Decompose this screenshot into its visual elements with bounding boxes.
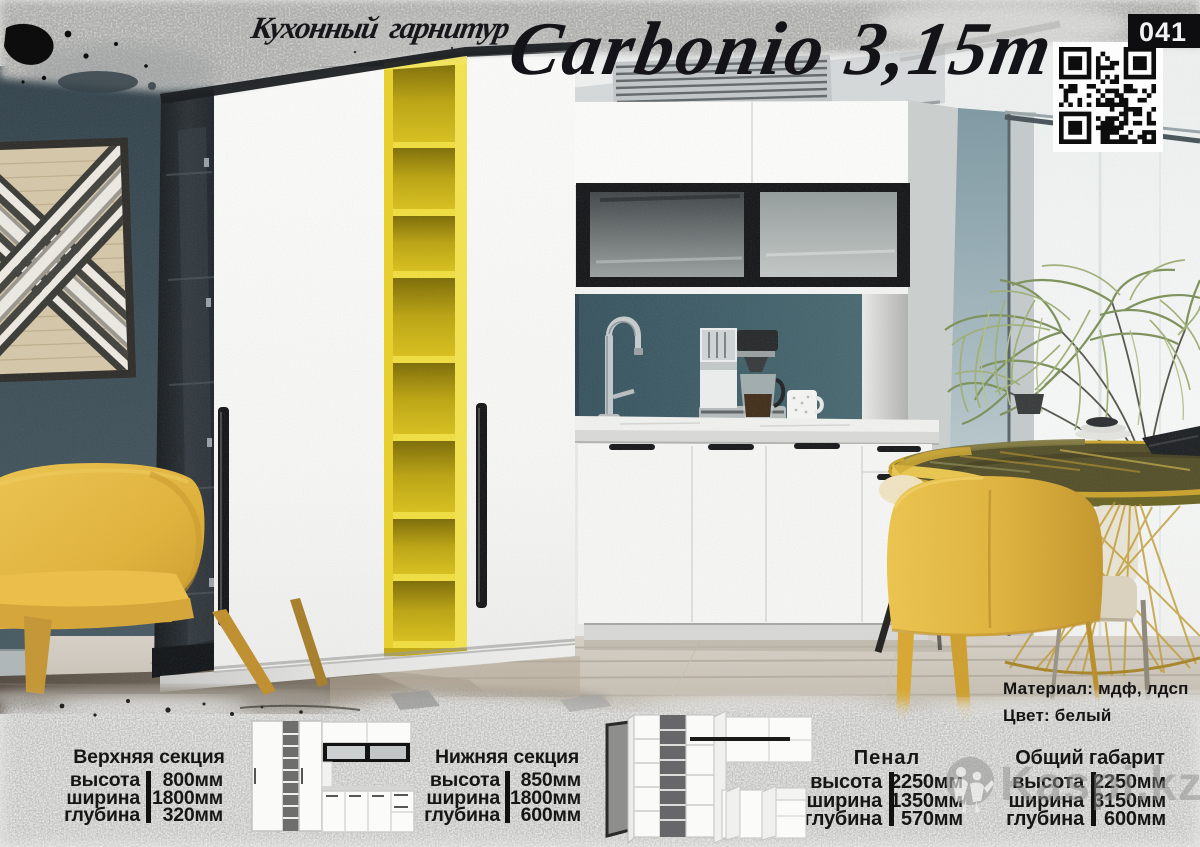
svg-text:Kaspi.kz: Kaspi.kz xyxy=(1000,758,1200,811)
svg-text:600мм: 600мм xyxy=(1104,808,1166,830)
svg-text:глубина: глубина xyxy=(1006,808,1085,830)
svg-text:глубина: глубина xyxy=(804,808,883,830)
svg-text:Цвет: белый: Цвет: белый xyxy=(1003,706,1112,725)
svg-text:320мм: 320мм xyxy=(163,804,223,826)
svg-text:570мм: 570мм xyxy=(901,808,963,830)
svg-text:Нижняя секция: Нижняя секция xyxy=(435,746,579,768)
svg-text:041: 041 xyxy=(1139,17,1187,47)
svg-text:Пенал: Пенал xyxy=(854,747,920,769)
svg-text:Carbonio 3,15m: Carbonio 3,15m xyxy=(503,7,1058,91)
svg-text:глубина: глубина xyxy=(64,804,140,826)
svg-text:Верхняя секция: Верхняя секция xyxy=(73,746,224,768)
svg-text:600мм: 600мм xyxy=(521,804,581,826)
svg-text:глубина: глубина xyxy=(424,804,500,826)
svg-text:Материал: мдф, лдсп: Материал: мдф, лдсп xyxy=(1003,679,1189,698)
svg-text:Кухонный гарнитур: Кухонный гарнитур xyxy=(248,10,515,45)
